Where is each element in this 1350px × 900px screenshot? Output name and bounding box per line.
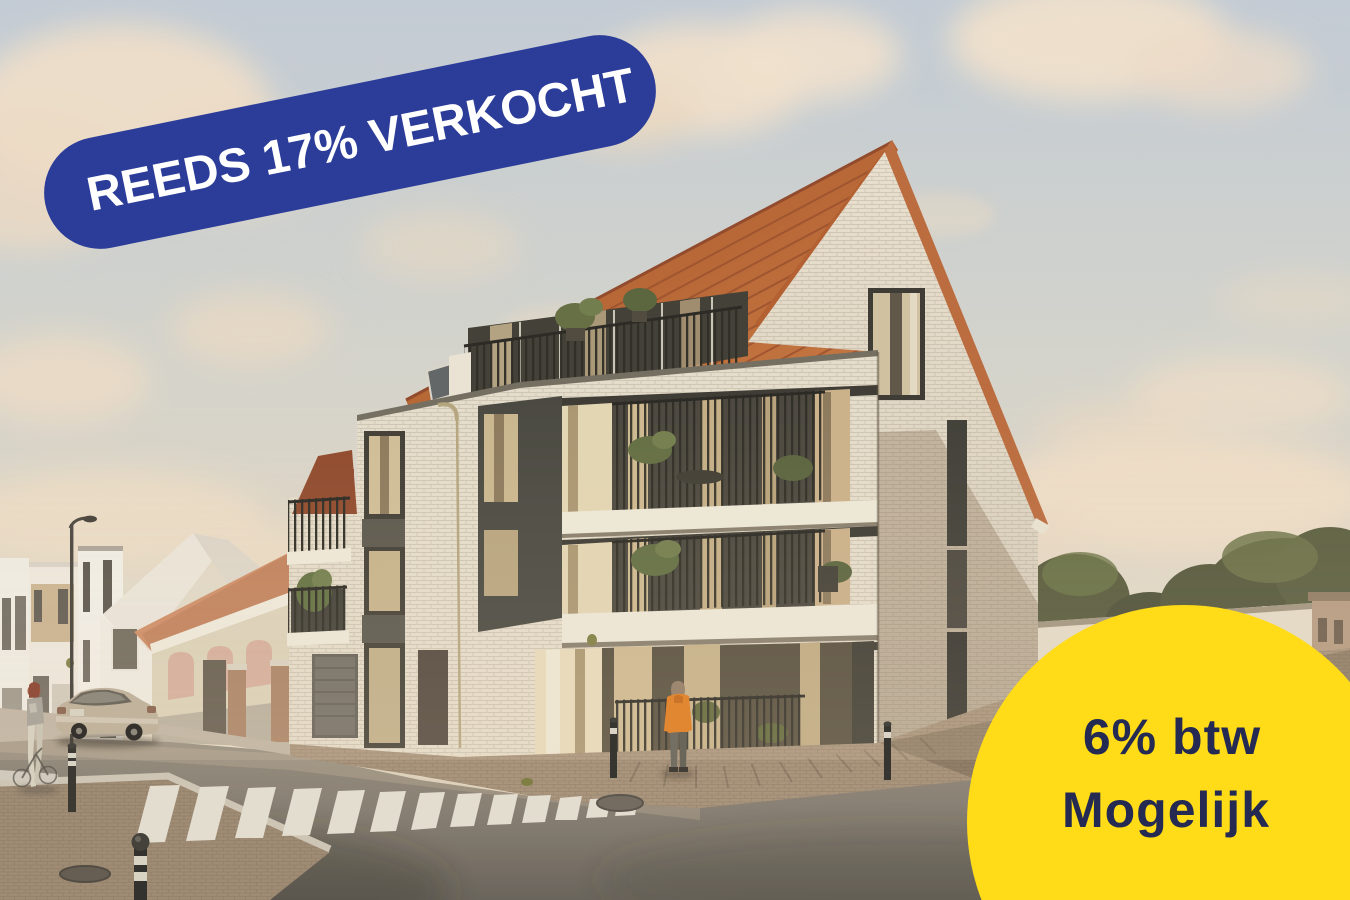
svg-text:Mogelijk: Mogelijk bbox=[1062, 782, 1270, 838]
svg-text:6% btw: 6% btw bbox=[1083, 709, 1261, 765]
